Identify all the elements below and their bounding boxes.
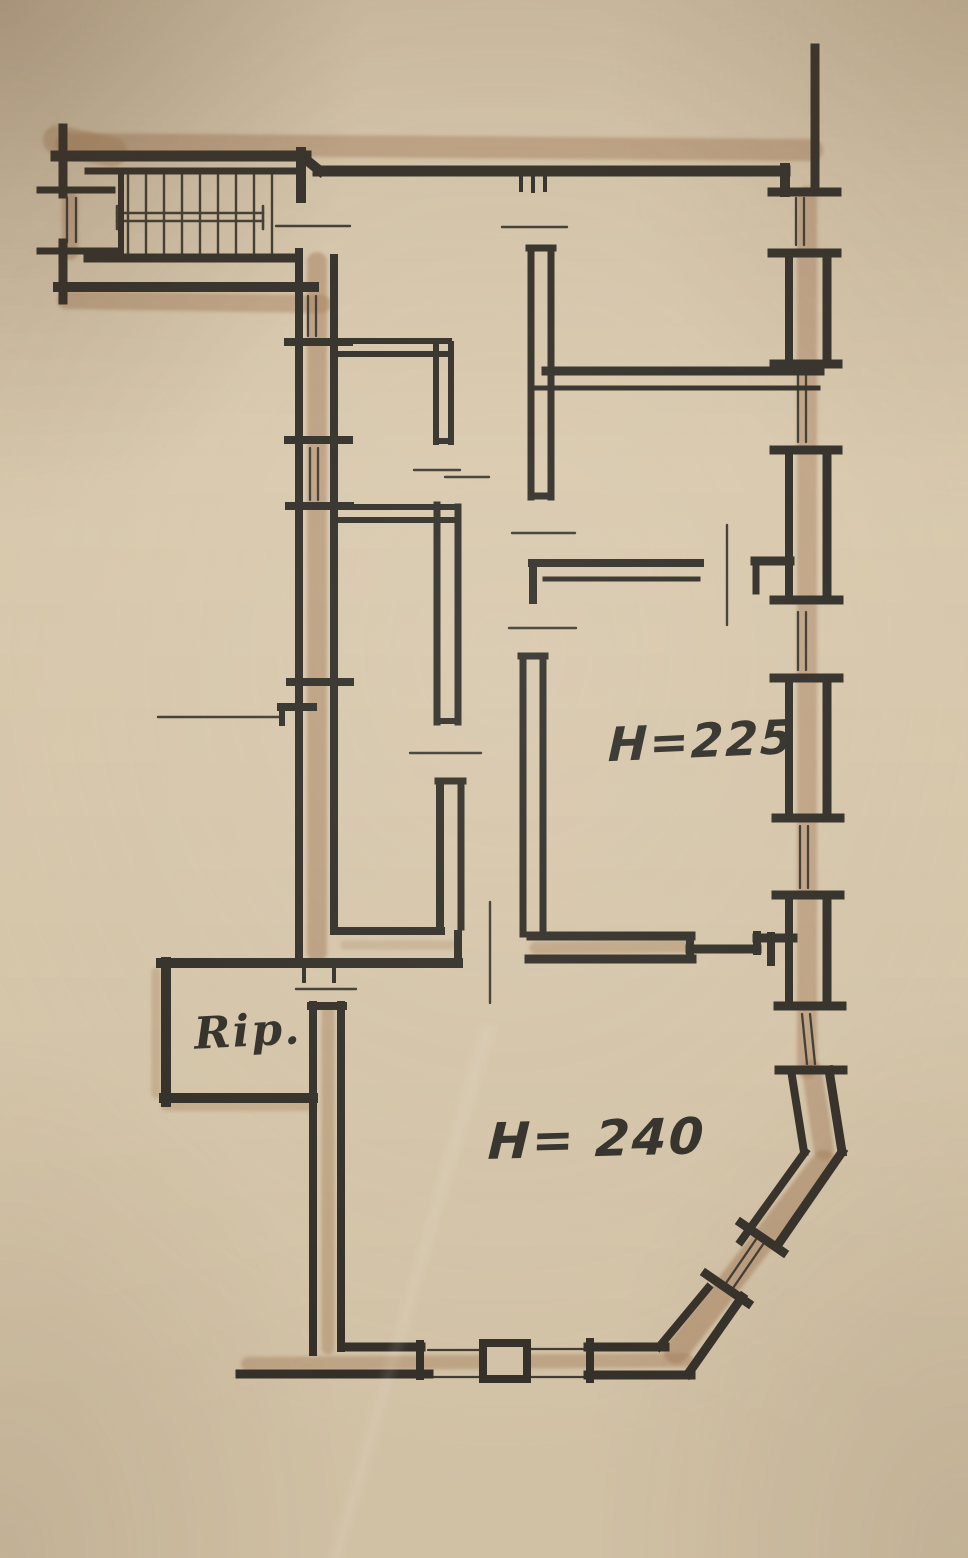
interior-walls	[337, 248, 820, 962]
room-height-label-upper: H=225	[607, 710, 795, 773]
storage-room-label: Rip.	[193, 1003, 303, 1060]
pillar-column	[483, 1343, 527, 1379]
storage-room-walls	[161, 934, 458, 1352]
room-height-label-lower: H= 240	[487, 1107, 707, 1171]
exterior-wall-left	[281, 252, 441, 957]
stair-handrail	[117, 206, 263, 229]
floor-plan-drawing	[0, 0, 968, 1558]
stair-treads	[128, 175, 272, 256]
exterior-wall-top	[304, 158, 785, 191]
floor-plan-scan: H=225 H= 240 Rip.	[0, 0, 968, 1558]
